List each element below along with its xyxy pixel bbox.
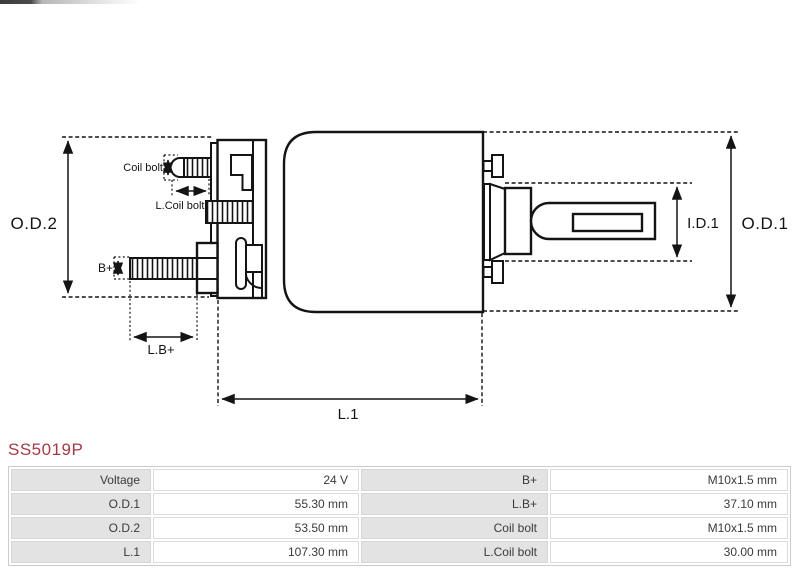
spec-value-od2: 53.50 mm [153, 517, 359, 539]
spec-label-lb-plus: L.B+ [361, 493, 548, 515]
b-plus-boss [246, 245, 262, 272]
spec-value-lb-plus: 37.10 mm [550, 493, 788, 515]
b-plus-label: B+ [98, 261, 113, 275]
spec-table: Voltage 24 V B+ M10x1.5 mm O.D.1 55.30 m… [8, 466, 791, 566]
od1-dimension: O.D.1 [731, 136, 788, 307]
spec-row-l1: L.1 107.30 mm L.Coil bolt 30.00 mm [11, 541, 788, 563]
b-plus-threads [130, 258, 197, 279]
plunger-hub [505, 188, 531, 254]
spec-label-voltage: Voltage [11, 469, 151, 491]
mounting-tab-top [484, 155, 504, 177]
lb-plus-label: L.B+ [147, 342, 174, 357]
spec-row-voltage: Voltage 24 V B+ M10x1.5 mm [11, 469, 788, 491]
l1-dimension: L.1 [218, 300, 482, 423]
plunger-assembly [484, 184, 655, 260]
coil-bolt-label: Coil bolt [123, 162, 163, 174]
spec-label-b-plus: B+ [361, 469, 548, 491]
l-coil-bolt-dimension: L.Coil bolt [156, 179, 209, 212]
plunger-cone [490, 184, 505, 260]
mounting-tab-bottom [484, 261, 504, 283]
id1-label: I.D.1 [687, 215, 719, 232]
spec-label-od1: O.D.1 [11, 493, 151, 515]
spec-label-l-coil-bolt: L.Coil bolt [361, 541, 548, 563]
spec-label-coil-bolt: Coil bolt [361, 517, 548, 539]
lb-plus-dimension: L.B+ [130, 281, 197, 357]
od2-label: O.D.2 [11, 214, 58, 233]
product-drawing-page: O.D.2 O.D.1 I.D.1 L.1 L.B+ [0, 0, 800, 568]
spec-label-l1: L.1 [11, 541, 151, 563]
spec-label-od2: O.D.2 [11, 517, 151, 539]
solenoid-body [284, 132, 483, 312]
spec-value-coil-bolt: M10x1.5 mm [550, 517, 788, 539]
solenoid-technical-drawing: O.D.2 O.D.1 I.D.1 L.1 L.B+ [0, 0, 800, 440]
spec-value-od1: 55.30 mm [153, 493, 359, 515]
coil-bolt-tip [171, 158, 186, 177]
spec-value-l-coil-bolt: 30.00 mm [550, 541, 788, 563]
part-number: SS5019P [8, 440, 83, 460]
od1-label: O.D.1 [742, 214, 789, 233]
spec-value-voltage: 24 V [153, 469, 359, 491]
b-plus-stud [130, 238, 262, 293]
coil-bolt-inner-threads [206, 201, 253, 223]
plunger-slot [573, 214, 642, 231]
l-coil-bolt-label: L.Coil bolt [156, 200, 205, 212]
coil-bolt-threads [184, 158, 211, 177]
spec-row-od1: O.D.1 55.30 mm L.B+ 37.10 mm [11, 493, 788, 515]
coil-bolt-stud [171, 158, 212, 177]
b-plus-nut [197, 243, 218, 293]
spec-value-l1: 107.30 mm [153, 541, 359, 563]
b-plus-sleeve [236, 238, 246, 289]
spec-row-od2: O.D.2 53.50 mm Coil bolt M10x1.5 mm [11, 517, 788, 539]
b-plus-dimension: B+ [98, 257, 130, 279]
l1-label: L.1 [338, 406, 359, 423]
spec-value-b-plus: M10x1.5 mm [550, 469, 788, 491]
